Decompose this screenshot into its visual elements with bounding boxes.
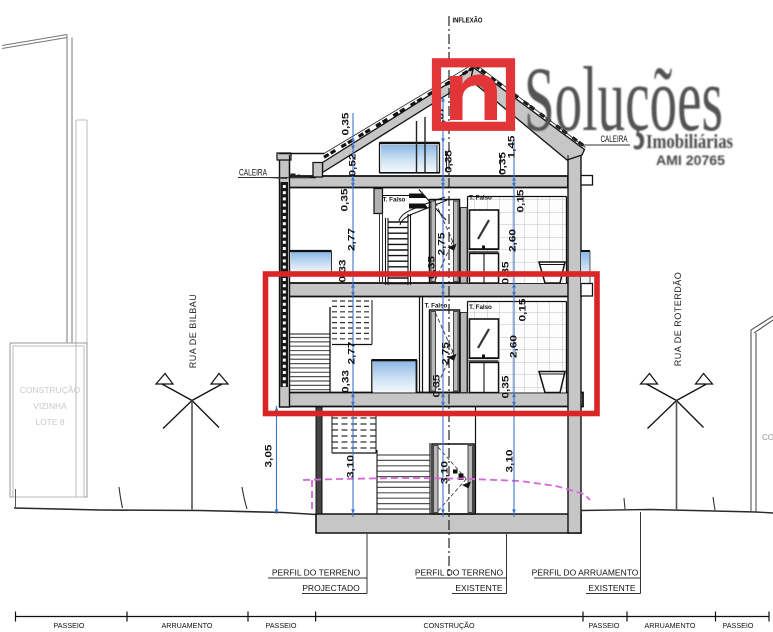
svg-text:VIZINHA: VIZINHA — [33, 401, 67, 411]
svg-text:PROJECTADO: PROJECTADO — [302, 583, 360, 593]
svg-text:0,33: 0,33 — [337, 260, 348, 283]
svg-text:PERFIL DO ARRUAMENTO: PERFIL DO ARRUAMENTO — [532, 568, 639, 578]
svg-text:RUA DE BILBAU: RUA DE BILBAU — [188, 294, 198, 369]
svg-text:2,60: 2,60 — [507, 229, 518, 252]
svg-text:3,10: 3,10 — [345, 455, 356, 478]
svg-text:0,35: 0,35 — [339, 188, 350, 212]
svg-text:3,10: 3,10 — [504, 450, 515, 473]
svg-text:0,35: 0,35 — [443, 149, 454, 173]
svg-text:0,52: 0,52 — [347, 154, 358, 177]
svg-text:2,77: 2,77 — [346, 228, 357, 251]
svg-text:T. Falso: T. Falso — [425, 303, 448, 310]
svg-text:CALEIRA: CALEIRA — [239, 168, 267, 178]
svg-text:AMI 20765: AMI 20765 — [656, 153, 726, 168]
svg-text:2,60: 2,60 — [508, 335, 519, 358]
svg-text:T. Falso: T. Falso — [469, 304, 492, 311]
svg-text:2,77: 2,77 — [346, 342, 357, 365]
svg-text:CONSTRUÇÃO: CONSTRUÇÃO — [762, 433, 773, 442]
svg-text:PERFIL DO TERRENO: PERFIL DO TERRENO — [415, 568, 504, 578]
svg-text:EXISTENTE: EXISTENTE — [455, 583, 503, 593]
svg-text:CONSTRUÇÃO: CONSTRUÇÃO — [20, 385, 81, 395]
svg-text:Imobiliárias: Imobiliárias — [646, 131, 733, 153]
svg-text:3,05: 3,05 — [263, 444, 274, 468]
svg-text:PASSEIO: PASSEIO — [265, 621, 296, 630]
svg-text:0,35: 0,35 — [340, 112, 351, 136]
svg-text:0,35: 0,35 — [500, 375, 511, 399]
svg-text:0,35: 0,35 — [497, 151, 508, 175]
svg-text:0,33: 0,33 — [340, 370, 351, 393]
svg-text:RUA DE ROTERDÃO: RUA DE ROTERDÃO — [673, 272, 683, 367]
svg-text:2,75: 2,75 — [440, 341, 451, 365]
svg-text:LOTE 8: LOTE 8 — [35, 417, 65, 427]
svg-text:2,75: 2,75 — [436, 232, 447, 256]
svg-text:CONSTRUÇÃO: CONSTRUÇÃO — [423, 621, 475, 630]
svg-text:PASSEIO: PASSEIO — [722, 621, 753, 630]
svg-text:0,15: 0,15 — [517, 298, 528, 322]
svg-text:PASSEIO: PASSEIO — [53, 621, 84, 630]
svg-text:T. Falso: T. Falso — [383, 197, 406, 204]
svg-text:0,35: 0,35 — [431, 374, 442, 398]
svg-text:EXISTENTE: EXISTENTE — [588, 583, 636, 593]
svg-text:T. Falso: T. Falso — [469, 195, 492, 202]
svg-text:INFLEXÃO: INFLEXÃO — [453, 16, 483, 25]
svg-text:PASSEIO: PASSEIO — [588, 621, 619, 630]
svg-text:0,15: 0,15 — [515, 189, 526, 213]
svg-text:ARRUAMENTO: ARRUAMENTO — [162, 621, 213, 630]
svg-text:3,10: 3,10 — [439, 461, 450, 484]
svg-text:PERFIL DO TERRENO: PERFIL DO TERRENO — [272, 568, 361, 578]
svg-text:ARRUAMENTO: ARRUAMENTO — [645, 621, 696, 630]
